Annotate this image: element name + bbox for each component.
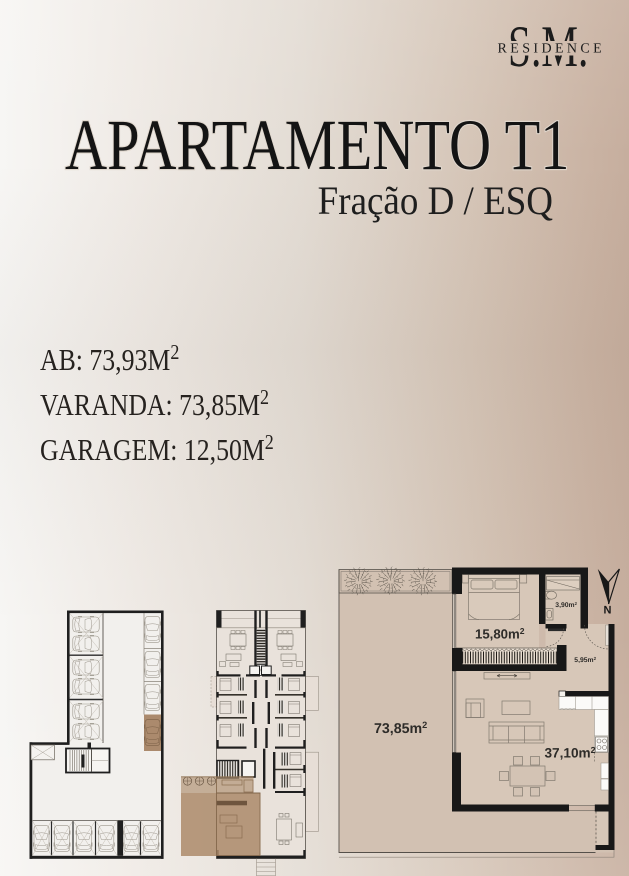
svg-text:73,85m2: 73,85m2 [374, 720, 427, 737]
svg-text:5,95m2: 5,95m2 [574, 656, 596, 664]
svg-text:N: N [604, 605, 612, 617]
svg-text:3,90m2: 3,90m2 [555, 601, 577, 609]
svg-text:37,10m2: 37,10m2 [545, 745, 596, 761]
svg-text:RESIDENCE: RESIDENCE [498, 42, 606, 57]
svg-text:15,80m2: 15,80m2 [475, 626, 525, 642]
